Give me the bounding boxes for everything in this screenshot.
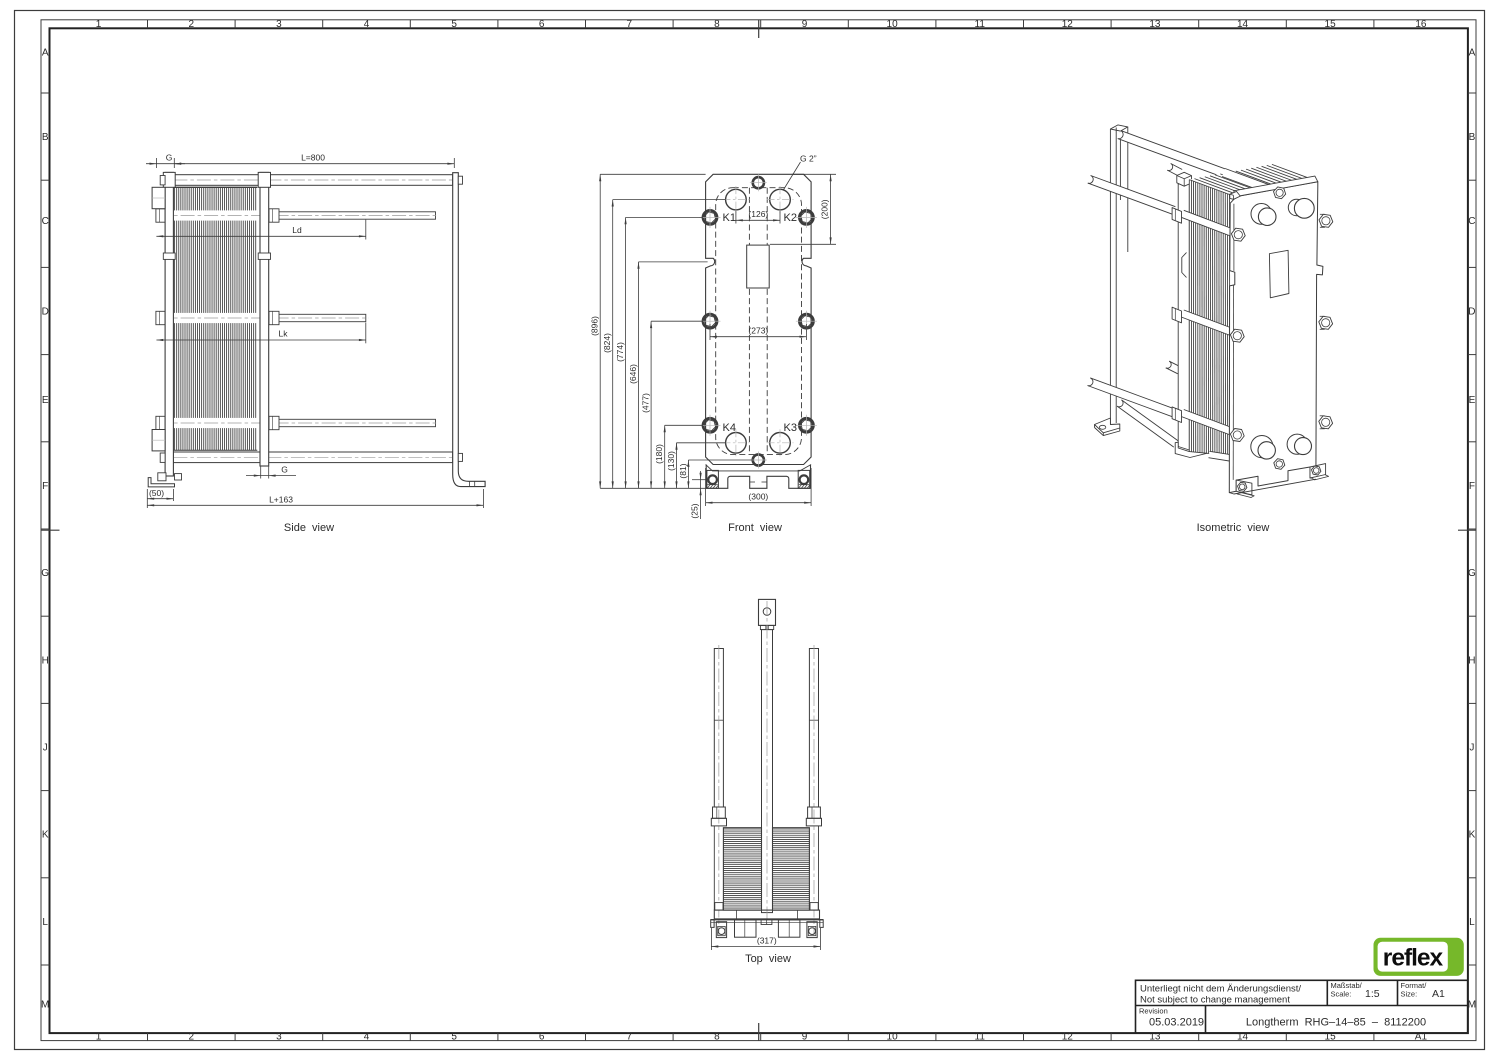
svg-text:G: G <box>1468 568 1476 579</box>
svg-text:(896): (896) <box>590 316 600 336</box>
svg-text:Revision: Revision <box>1139 1007 1168 1016</box>
svg-text:K4: K4 <box>723 422 736 434</box>
svg-text:11: 11 <box>975 19 986 30</box>
svg-text:D: D <box>42 307 49 318</box>
svg-text:(317): (317) <box>757 935 777 945</box>
svg-text:2: 2 <box>189 19 195 30</box>
svg-text:(81): (81) <box>678 463 688 478</box>
svg-text:reflex: reflex <box>1383 945 1444 972</box>
svg-text:E: E <box>42 395 49 406</box>
svg-text:7: 7 <box>627 19 633 30</box>
svg-text:12: 12 <box>1062 1032 1074 1043</box>
svg-text:05.03.2019: 05.03.2019 <box>1149 1017 1204 1029</box>
svg-text:K3: K3 <box>784 422 797 434</box>
svg-text:(180): (180) <box>654 444 664 464</box>
svg-text:G: G <box>281 465 288 475</box>
svg-text:1:5: 1:5 <box>1365 988 1380 1000</box>
svg-text:F: F <box>1469 481 1475 492</box>
svg-text:7: 7 <box>627 1032 633 1043</box>
svg-text:F: F <box>42 481 48 492</box>
svg-text:J: J <box>43 743 48 754</box>
svg-text:B: B <box>42 132 49 143</box>
svg-text:G: G <box>41 568 49 579</box>
svg-text:(273): (273) <box>748 326 768 336</box>
svg-text:C: C <box>42 216 49 227</box>
svg-text:(300): (300) <box>748 492 768 502</box>
svg-text:(774): (774) <box>615 342 625 362</box>
svg-text:11: 11 <box>975 1032 986 1043</box>
svg-text:1: 1 <box>96 1032 102 1043</box>
svg-text:K: K <box>42 830 49 841</box>
svg-text:(126): (126) <box>748 209 768 219</box>
svg-text:16: 16 <box>1415 19 1427 30</box>
svg-text:(130): (130) <box>666 451 676 471</box>
svg-text:5: 5 <box>451 1032 457 1043</box>
svg-text:K: K <box>1469 830 1476 841</box>
svg-text:A: A <box>42 48 49 59</box>
svg-text:(200): (200) <box>820 199 830 219</box>
svg-text:A: A <box>1469 48 1476 59</box>
svg-text:Top view: Top view <box>745 953 791 965</box>
svg-text:M: M <box>1468 1000 1476 1011</box>
svg-text:2: 2 <box>189 1032 195 1043</box>
svg-text:H: H <box>1468 655 1475 666</box>
svg-text:10: 10 <box>887 1032 899 1043</box>
svg-text:K1: K1 <box>723 212 736 224</box>
svg-text:(50): (50) <box>149 488 164 498</box>
svg-text:10: 10 <box>887 19 899 30</box>
svg-text:G 2”: G 2” <box>800 154 817 164</box>
svg-text:1: 1 <box>96 19 102 30</box>
svg-text:9: 9 <box>802 1032 808 1043</box>
svg-text:L: L <box>42 917 48 928</box>
svg-text:B: B <box>1469 132 1476 143</box>
svg-text:(646): (646) <box>628 364 638 384</box>
svg-text:(25): (25) <box>690 503 700 518</box>
svg-text:C: C <box>1468 216 1475 227</box>
svg-text:4: 4 <box>364 1032 370 1043</box>
svg-text:8: 8 <box>714 1032 720 1043</box>
svg-text:Isometric view: Isometric view <box>1197 522 1270 534</box>
svg-text:G: G <box>166 153 173 163</box>
svg-text:Front view: Front view <box>728 522 782 534</box>
svg-text:K2: K2 <box>784 212 797 224</box>
svg-text:3: 3 <box>276 1032 282 1043</box>
svg-text:3: 3 <box>276 19 282 30</box>
svg-text:Longtherm RHG–14–85 – 81122: Longtherm RHG–14–85 – 8112200 <box>1246 1017 1426 1029</box>
svg-text:H: H <box>42 655 49 666</box>
svg-text:12: 12 <box>1062 19 1074 30</box>
svg-text:L=800: L=800 <box>301 153 325 163</box>
svg-text:(824): (824) <box>602 333 612 353</box>
svg-text:9: 9 <box>802 19 808 30</box>
svg-text:J: J <box>1469 743 1474 754</box>
svg-text:(477): (477) <box>641 393 651 413</box>
svg-text:13: 13 <box>1149 19 1161 30</box>
svg-text:15: 15 <box>1325 19 1337 30</box>
svg-text:4: 4 <box>364 19 370 30</box>
svg-text:A1: A1 <box>1432 988 1445 1000</box>
svg-text:L: L <box>1469 917 1475 928</box>
svg-text:6: 6 <box>539 19 545 30</box>
svg-text:14: 14 <box>1237 19 1249 30</box>
svg-text:M: M <box>41 1000 49 1011</box>
svg-text:5: 5 <box>451 19 457 30</box>
svg-text:D: D <box>1468 307 1475 318</box>
svg-text:6: 6 <box>539 1032 545 1043</box>
svg-text:L+163: L+163 <box>269 494 293 504</box>
svg-text:Ld: Ld <box>292 225 302 235</box>
svg-text:Not subject to change manageme: Not subject to change management <box>1140 995 1290 1006</box>
svg-text:8: 8 <box>714 19 720 30</box>
svg-text:Side view: Side view <box>284 522 334 534</box>
svg-text:Size:: Size: <box>1401 990 1418 999</box>
svg-text:E: E <box>1469 395 1476 406</box>
svg-text:Lk: Lk <box>279 329 289 339</box>
svg-text:Unterliegt nicht dem Änderungs: Unterliegt nicht dem Änderungsdienst/ <box>1140 984 1301 995</box>
svg-text:Scale:: Scale: <box>1331 990 1352 999</box>
